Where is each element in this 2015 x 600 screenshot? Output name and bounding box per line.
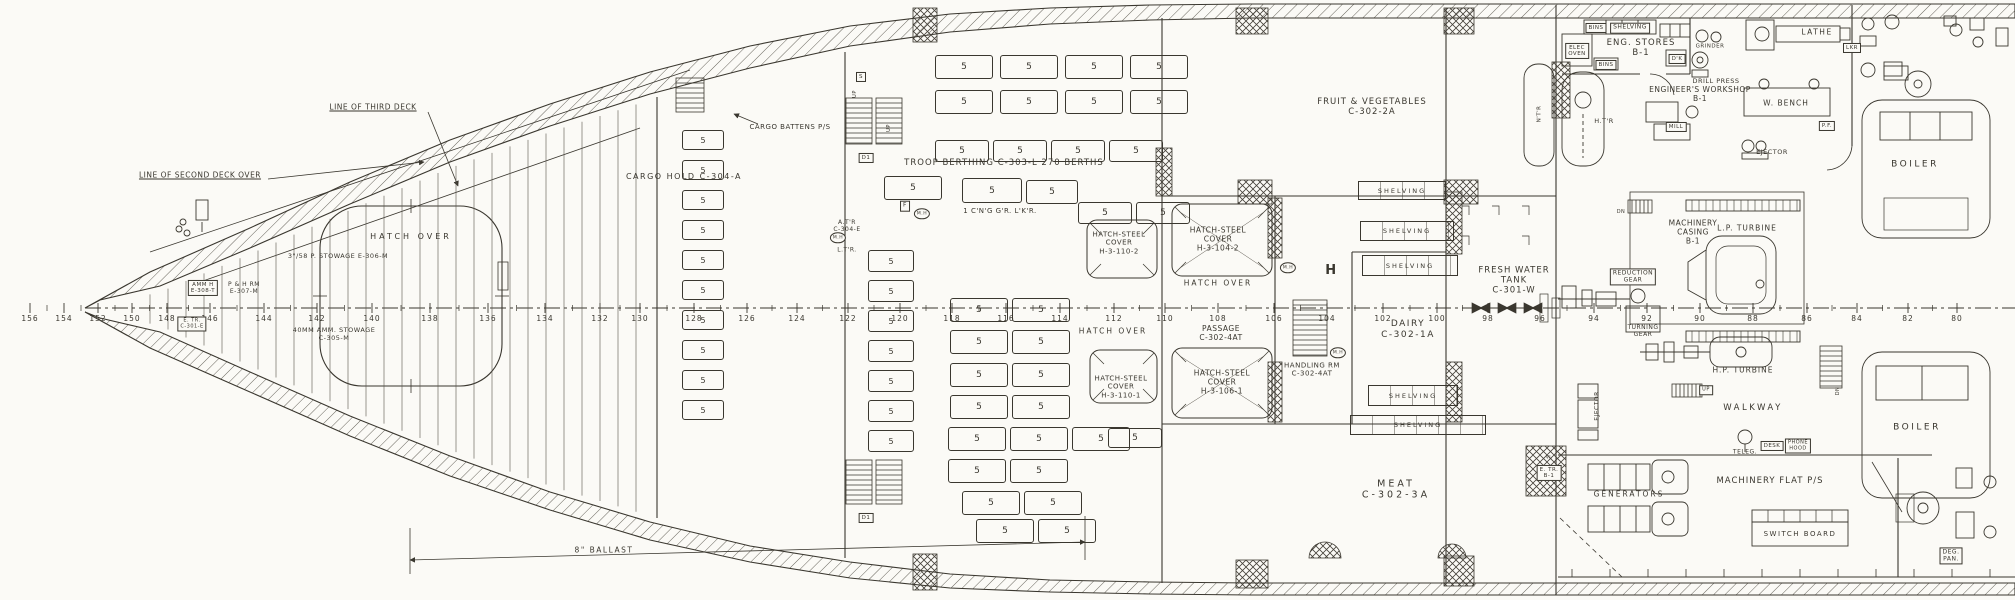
deck-plan-sheet: 5555555555555555555555555555555555555555…	[0, 0, 2015, 600]
pillars	[913, 8, 1570, 590]
stairs	[676, 78, 1842, 504]
cargo-hatch	[313, 199, 509, 393]
generated-linework	[30, 104, 1990, 577]
bulkheads	[657, 5, 2015, 595]
hull-linework	[0, 0, 2015, 600]
hull-shell	[85, 4, 2015, 595]
